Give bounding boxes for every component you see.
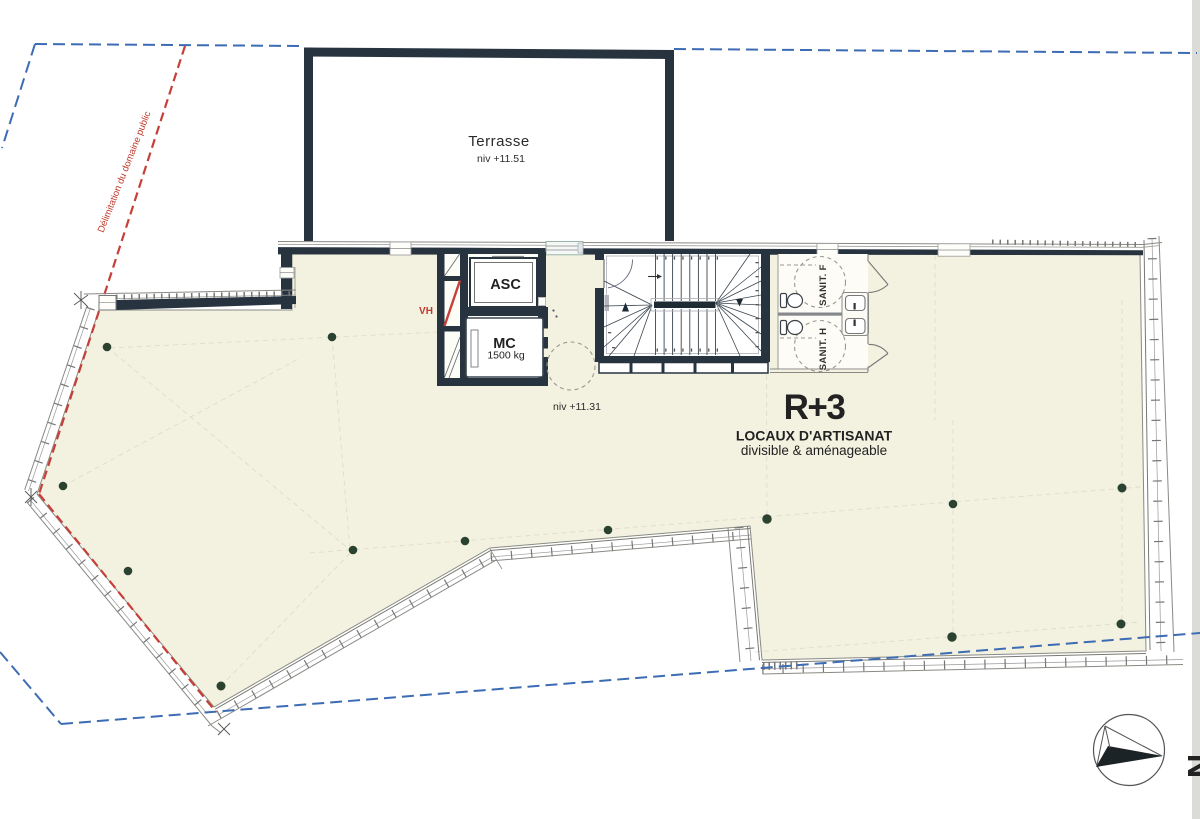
svg-text:SANIT. H: SANIT. H bbox=[818, 328, 829, 371]
svg-text:niv +11.51: niv +11.51 bbox=[477, 153, 525, 165]
svg-text:ASC: ASC bbox=[490, 277, 521, 293]
svg-text:VH: VH bbox=[419, 306, 433, 317]
svg-text:N: N bbox=[1180, 754, 1200, 779]
svg-text:SANIT. F: SANIT. F bbox=[818, 264, 829, 306]
svg-text:Terrasse: Terrasse bbox=[468, 133, 530, 150]
svg-text:divisible & aménageable: divisible & aménageable bbox=[741, 443, 887, 458]
svg-text:1500 kg: 1500 kg bbox=[487, 350, 525, 362]
svg-text:R+3: R+3 bbox=[784, 388, 846, 427]
svg-text:niv +11.31: niv +11.31 bbox=[553, 401, 601, 413]
svg-text:LOCAUX D'ARTISANAT: LOCAUX D'ARTISANAT bbox=[736, 428, 893, 444]
